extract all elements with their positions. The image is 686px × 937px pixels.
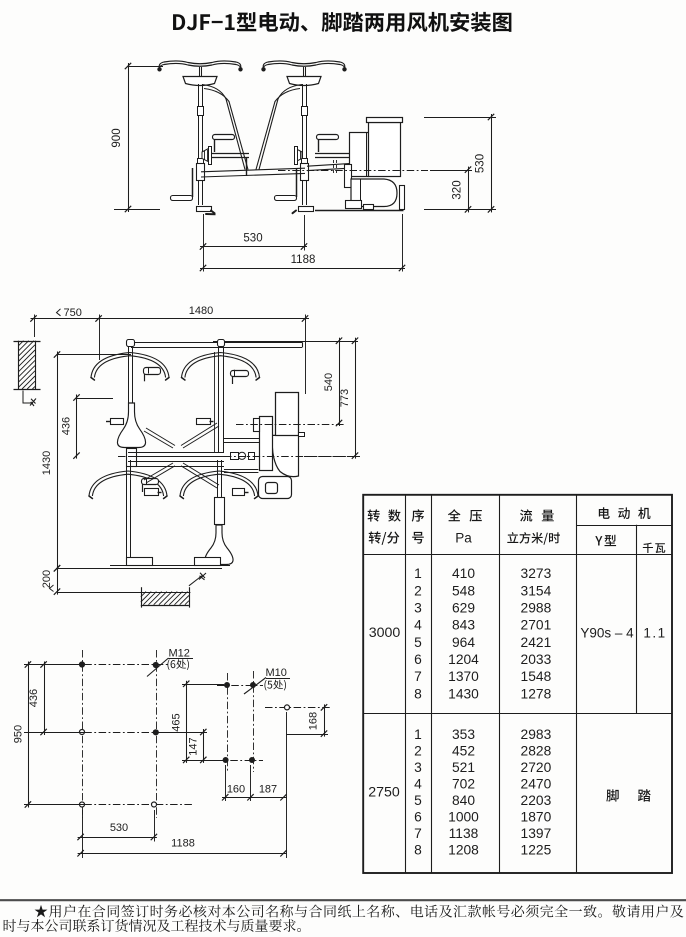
svg-text:1480: 1480 (189, 305, 213, 317)
svg-text:1430: 1430 (448, 686, 479, 701)
svg-text:2033: 2033 (521, 652, 552, 667)
svg-text:1208: 1208 (448, 843, 479, 858)
svg-text:7: 7 (414, 826, 422, 841)
svg-text:2: 2 (414, 583, 422, 598)
svg-text:Pa: Pa (455, 531, 472, 546)
svg-text:2988: 2988 (521, 601, 552, 616)
svg-text:964: 964 (452, 635, 475, 650)
svg-text:702: 702 (452, 776, 475, 791)
svg-text:Y90s – 4: Y90s – 4 (580, 626, 634, 641)
svg-text:530: 530 (475, 154, 487, 173)
svg-text:3: 3 (414, 601, 422, 616)
svg-text:320: 320 (452, 180, 464, 199)
svg-text:2983: 2983 (521, 727, 552, 742)
svg-text:1397: 1397 (521, 826, 552, 841)
svg-text:7: 7 (414, 669, 422, 684)
svg-text:530: 530 (110, 822, 128, 834)
svg-text:3154: 3154 (521, 583, 552, 598)
svg-text:843: 843 (452, 618, 475, 633)
svg-text:160: 160 (227, 784, 245, 796)
svg-text:530: 530 (243, 233, 262, 245)
svg-text:1225: 1225 (521, 843, 552, 858)
svg-text:521: 521 (452, 760, 475, 775)
svg-text:2750: 2750 (368, 785, 400, 801)
svg-text:840: 840 (452, 793, 475, 808)
svg-text:3273: 3273 (521, 566, 552, 581)
svg-text:M10: M10 (266, 667, 287, 679)
svg-text:436: 436 (28, 689, 40, 707)
svg-text:1: 1 (414, 727, 422, 742)
svg-text:750: 750 (64, 307, 82, 319)
svg-text:353: 353 (452, 727, 475, 742)
svg-text:1278: 1278 (521, 686, 552, 701)
svg-text:4: 4 (414, 618, 422, 633)
svg-text:1188: 1188 (291, 254, 316, 266)
svg-text:1548: 1548 (521, 669, 552, 684)
svg-text:5: 5 (414, 635, 422, 650)
svg-text:1188: 1188 (171, 838, 195, 850)
svg-text:1: 1 (414, 566, 422, 581)
svg-text:6: 6 (414, 809, 422, 824)
svg-text:1.1: 1.1 (643, 626, 666, 641)
svg-text:410: 410 (452, 566, 475, 581)
svg-text:1870: 1870 (521, 809, 552, 824)
svg-text:M12: M12 (169, 648, 190, 660)
svg-text:950: 950 (13, 725, 25, 743)
svg-text:147: 147 (188, 737, 200, 755)
svg-text:548: 548 (452, 583, 475, 598)
svg-text:168: 168 (308, 712, 320, 730)
svg-text:4: 4 (414, 776, 422, 791)
svg-text:6: 6 (414, 652, 422, 667)
svg-text:1204: 1204 (448, 652, 479, 667)
svg-text:900: 900 (111, 128, 123, 147)
svg-text:629: 629 (452, 601, 475, 616)
svg-text:2701: 2701 (521, 618, 552, 633)
svg-text:452: 452 (452, 743, 475, 758)
svg-text:200: 200 (41, 570, 53, 588)
svg-text:2828: 2828 (521, 743, 552, 758)
svg-text:540: 540 (323, 373, 335, 391)
svg-text:8: 8 (414, 686, 422, 701)
svg-text:1430: 1430 (41, 451, 53, 475)
svg-text:3: 3 (414, 760, 422, 775)
svg-text:5: 5 (414, 793, 422, 808)
svg-text:2470: 2470 (521, 776, 552, 791)
svg-text:2720: 2720 (521, 760, 552, 775)
svg-text:187: 187 (259, 784, 277, 796)
svg-text:2421: 2421 (521, 635, 552, 650)
svg-text:465: 465 (171, 713, 183, 731)
svg-text:2203: 2203 (521, 793, 552, 808)
svg-text:2: 2 (414, 743, 422, 758)
svg-text:1138: 1138 (449, 826, 479, 841)
svg-text:436: 436 (61, 417, 73, 435)
svg-text:1000: 1000 (448, 809, 479, 824)
svg-text:773: 773 (339, 389, 351, 407)
svg-text:1370: 1370 (448, 669, 479, 684)
svg-text:3000: 3000 (369, 625, 401, 641)
svg-text:8: 8 (414, 843, 422, 858)
